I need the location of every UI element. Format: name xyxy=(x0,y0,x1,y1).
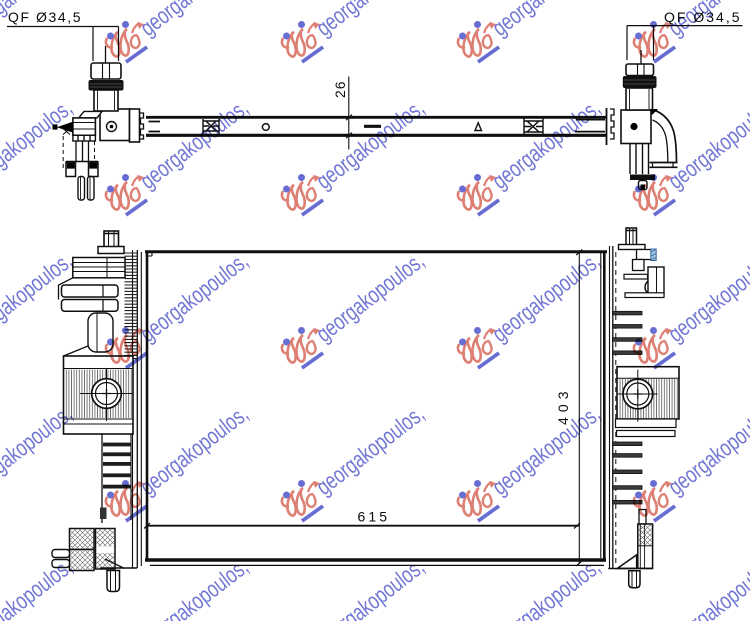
svg-text:georgakopoulos,: georgakopoulos, xyxy=(663,553,750,621)
svg-text:georgakopoulos,: georgakopoulos, xyxy=(311,0,429,41)
svg-text:georgakopoulos,: georgakopoulos, xyxy=(135,553,253,621)
svg-text:georgakopoulos,: georgakopoulos, xyxy=(135,0,253,41)
svg-text:QF Ø34,5: QF Ø34,5 xyxy=(8,9,81,25)
svg-text:georgakopoulos,: georgakopoulos, xyxy=(311,247,429,347)
svg-text:georgakopoulos,: georgakopoulos, xyxy=(0,553,77,621)
svg-text:georgakopoulos,: georgakopoulos, xyxy=(487,247,605,347)
svg-text:georgakopoulos,: georgakopoulos, xyxy=(311,553,429,621)
svg-text:georgakopoulos,: georgakopoulos, xyxy=(135,400,253,500)
svg-text:georgakopoulos,: georgakopoulos, xyxy=(311,94,429,194)
svg-text:georgakopoulos,: georgakopoulos, xyxy=(0,400,77,500)
svg-text:georgakopoulos,: georgakopoulos, xyxy=(487,0,605,41)
svg-text:georgakopoulos,: georgakopoulos, xyxy=(487,553,605,621)
svg-text:georgakopoulos,: georgakopoulos, xyxy=(311,400,429,500)
svg-text:georgakopoulos,: georgakopoulos, xyxy=(663,247,750,347)
svg-text:615: 615 xyxy=(358,509,388,525)
svg-text:georgakopoulos,: georgakopoulos, xyxy=(0,94,77,194)
svg-text:georgakopoulos,: georgakopoulos, xyxy=(487,400,605,500)
svg-text:georgakopoulos,: georgakopoulos, xyxy=(135,94,253,194)
svg-text:26: 26 xyxy=(332,81,348,98)
svg-text:georgakopoulos,: georgakopoulos, xyxy=(135,247,253,347)
svg-text:georgakopoulos,: georgakopoulos, xyxy=(487,94,605,194)
